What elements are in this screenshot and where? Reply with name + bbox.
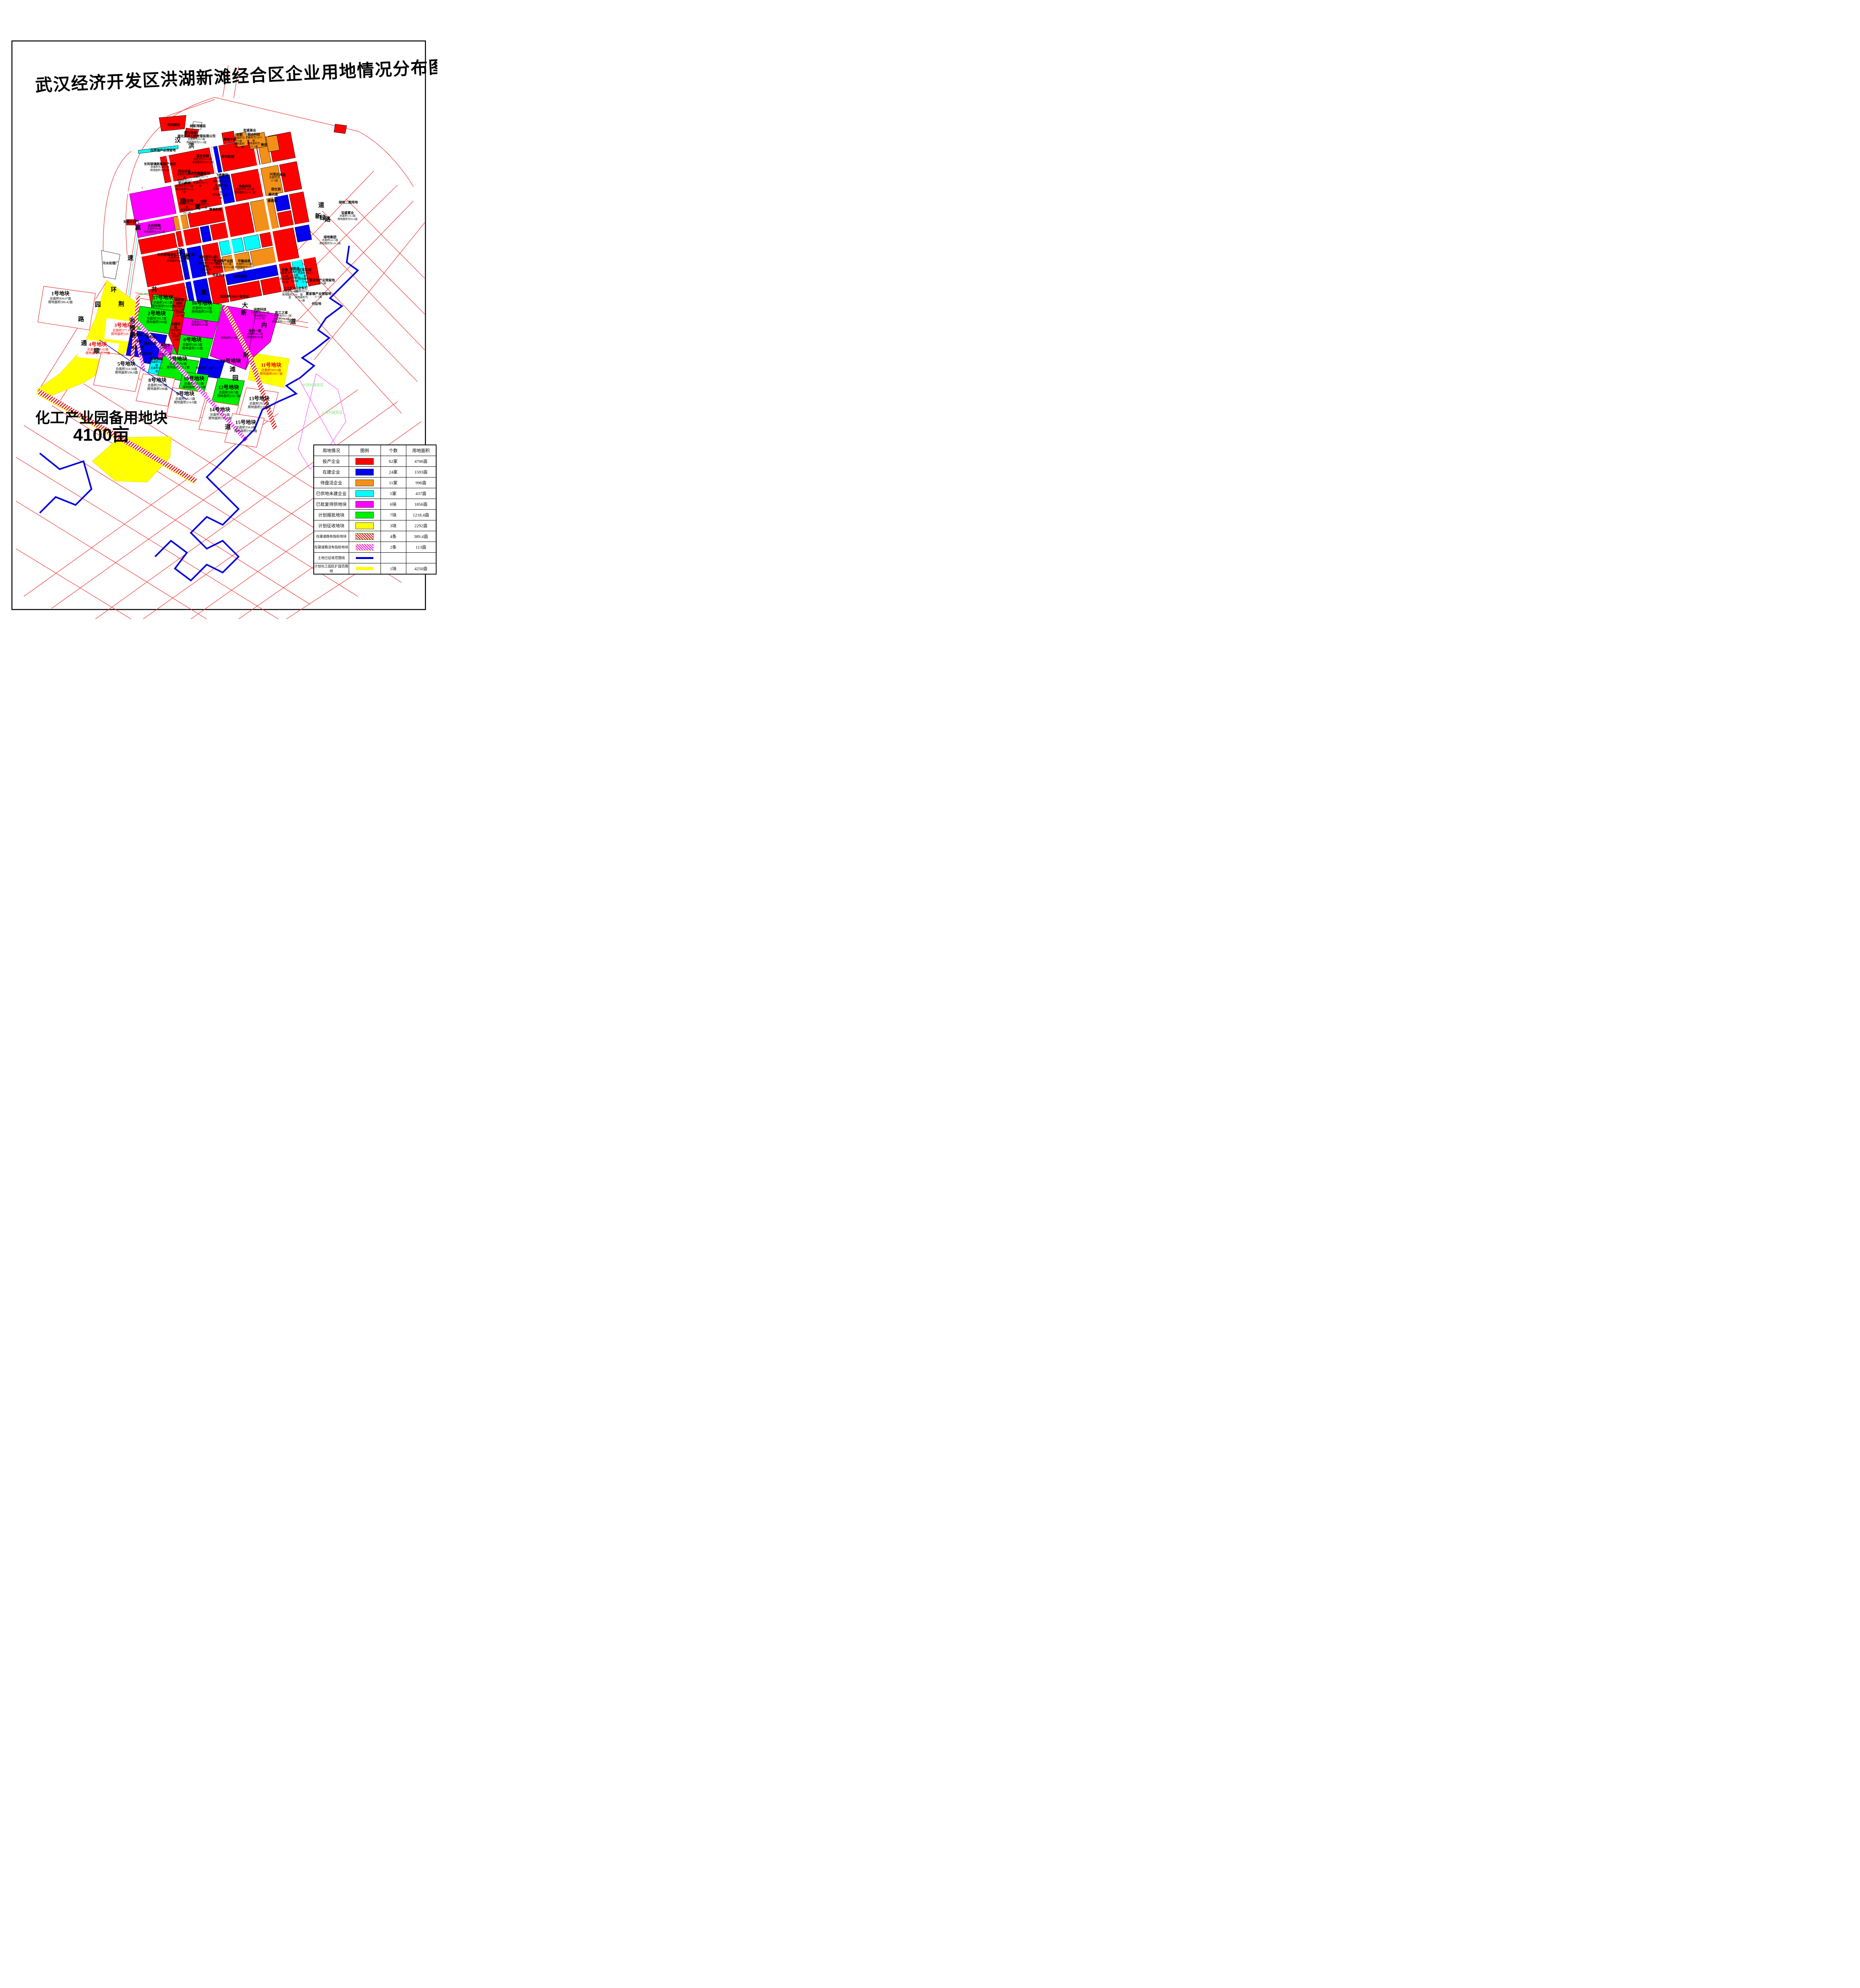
legend-area: 1593亩	[406, 467, 436, 478]
road-char-建: 建	[200, 288, 206, 297]
parcel-label-宏盛基业: 宏盛基业	[242, 128, 258, 132]
parcel-label-代征地: 代征地	[307, 302, 326, 305]
legend-label: 在建道路有指标地块	[314, 531, 349, 542]
legend-header-row: 用地情况 图例 个数 用地面积	[314, 445, 436, 456]
legend-swatch-hatch-red	[355, 533, 374, 540]
legend-count: 2条	[381, 542, 406, 553]
parcel-label-闲庭科技: 闲庭科技总面积为171.7亩用地面积为123.67亩	[250, 308, 270, 320]
legend-symbol-cell	[349, 520, 381, 531]
parcel-label-南铁涂料: 南铁涂料	[231, 274, 249, 278]
road-char-高: 高	[135, 223, 141, 232]
legend-count	[381, 553, 406, 563]
legend-row: 计划报批地块7块1218.4亩	[314, 510, 436, 520]
legend-label: 已批复待供地块	[314, 499, 349, 510]
parcel-label-盛世为敬: 盛世为敬	[143, 342, 157, 345]
parcel-label-丽泽一期: 丽泽一期	[130, 346, 145, 349]
plot-label-12号地块: 12号地块总面积298.5亩用地面积234.7亩	[217, 384, 240, 398]
parcel-label-夏家墩产业预留地: 夏家墩产业预留地67.5亩	[299, 292, 338, 299]
legend-label: 已供地未建企业	[314, 488, 349, 499]
parcel-label-鑫达盛: 鑫达盛	[266, 192, 280, 196]
legend-swatch-solid	[355, 458, 374, 465]
legend-label: 土地已征收范围线	[314, 553, 349, 563]
road-char-道: 道	[225, 423, 231, 431]
legend-row: 在建道路没有指标地块2条113亩	[314, 542, 436, 553]
reserve-area-note-line1: 化工产业园备用地块	[35, 410, 168, 426]
parcel-label-stats: 用地面积138亩	[194, 367, 214, 369]
parcel-label-华融益辰: 华融益辰总面积133.9亩用地面积为110.3亩	[235, 259, 254, 272]
parcel-label-兰盾门业: 兰盾门业总面积为115.5亩用地面积为96.6亩	[212, 184, 230, 199]
legend-symbol-cell	[349, 456, 381, 467]
parcel-label-深圳宏钢: 深圳宏钢	[220, 155, 236, 158]
parcel-label-污水处理厂: 污水处理厂	[99, 261, 122, 265]
plot-label-10号地块: 10号地块	[220, 358, 241, 364]
plot-label-8号地块: 8号地块总面积298.9亩用地面积188亩	[147, 377, 168, 391]
road-char-荆: 荆	[243, 351, 249, 359]
legend-label: 待盘活企业	[314, 478, 349, 488]
legend-header-land-use: 用地情况	[314, 445, 349, 456]
legend-swatch-line-yellow	[356, 567, 373, 570]
plot-label-1号地块: 1号地块总面积456.07亩用地面积386.42亩	[48, 291, 73, 305]
road-char-滩: 滩	[229, 365, 235, 373]
parcel-label-赛凯龙: 赛凯龙净面积56.3亩总面积69亩	[159, 344, 172, 356]
legend-area	[406, 553, 436, 563]
legend-swatch-solid	[355, 490, 374, 497]
legend-header-count: 个数	[381, 445, 406, 456]
parcel-label-张家地产业预留地: 张家地产业预留地115.6亩	[302, 279, 342, 285]
legend-header-area: 用地面积	[406, 445, 436, 456]
road-char-路: 路	[324, 215, 330, 223]
legend-swatch-hatch-magenta	[355, 544, 374, 551]
road-char-汉: 汉	[175, 136, 181, 144]
plot-label-9号地块: 9号地块总面积341.5亩用地面积214.8亩	[174, 391, 197, 405]
parcel-label-鸿冠: 鸿冠	[276, 173, 288, 177]
parcel-label-美好新材料: 美好新材料用地面积为82.5亩总面积108.2亩	[173, 298, 185, 317]
legend-count: 11家	[381, 478, 406, 488]
legend-count: 6块	[381, 499, 406, 510]
parcel-label-stats: 用地面积400亩	[217, 336, 241, 339]
road-char-速: 速	[127, 254, 133, 262]
legend-row: 已供地未建企业5家437亩	[314, 488, 436, 499]
road-char-大: 大	[242, 301, 248, 309]
road-char-内: 内	[261, 321, 267, 329]
legend-label: 投产企业	[314, 456, 349, 467]
legend-symbol-cell	[349, 467, 381, 478]
road-char-汉: 汉	[177, 247, 183, 255]
legend-row: 在建道路有指标地块4条389.4亩	[314, 531, 436, 542]
parcel-label-绿地二期用地: 绿地二期用地	[330, 200, 366, 204]
legend-row: 计划征收地块3块2292亩	[314, 520, 436, 531]
parcel-label-壹泰科技: 壹泰科技	[207, 208, 224, 211]
legend-row: 在建企业24家1593亩	[314, 467, 436, 478]
road-char-共: 共	[151, 285, 157, 293]
legend-row: 待盘活企业11家996亩	[314, 478, 436, 488]
parcel-label-回风亭110KV变电站: 回风亭110KV变电站	[217, 295, 252, 298]
parcel-label-安心地板: 安心地板总面积为78.1亩用地面积为66.8亩	[176, 181, 193, 194]
legend-label: 在建道路没有指标地块	[314, 542, 349, 553]
road-char-洪: 洪	[188, 142, 194, 150]
village-label-上湾村居民区: 上湾村居民区	[321, 410, 343, 415]
parcel-label-绿地集团: 绿地集团总面积642.5亩用地面积为520.2亩	[318, 235, 342, 245]
legend-swatch-solid	[355, 512, 374, 518]
legend-area: 996亩	[406, 478, 436, 488]
reserve-area-note: 化工产业园备用地块 4100亩	[35, 410, 168, 444]
plot-label-13号地块: 13号地块总面积292.8亩用地面积238.8亩	[248, 396, 271, 410]
legend-row: 已批复待供地块6块1856亩	[314, 499, 436, 510]
legend-area: 1856亩	[406, 499, 436, 510]
legend-area: 113亩	[406, 542, 436, 553]
legend-symbol-cell	[349, 488, 381, 499]
plot-label-14号地块: 14号地块总面积317.6亩用地面积190.5亩	[208, 407, 231, 421]
parcel-label-stats: 总面积208.7亩用地面积200亩	[188, 321, 212, 327]
legend-label: 在建企业	[314, 467, 349, 478]
road-char-夏: 夏	[194, 203, 200, 211]
parcel-label-白斧池产业预留地: 白斧池产业预留地	[143, 148, 183, 152]
village-label-中湾村居民区: 中湾村居民区	[302, 382, 324, 388]
parcel-label-长利玻璃新能源产业园: 长利玻璃新能源产业园总面积为312.7亩用地面积为282亩	[142, 162, 178, 172]
parcel-label-长利玻璃: 长利玻璃总面积806亩用地面积为736.3亩	[140, 224, 168, 233]
road-char-道: 道	[290, 317, 296, 326]
parcel-label-奥信: 奥信	[258, 143, 270, 146]
legend-symbol-cell	[349, 478, 381, 488]
plot-label-7号地块: 7号地块总面积292亩用地面积235.2亩	[167, 356, 190, 370]
parcel-label-秦峡消防: 秦峡消防净面积46.2亩总面积56.1亩	[150, 357, 163, 373]
legend-label: 计划化工园区扩园范围线	[314, 563, 349, 575]
legend-symbol-cell	[349, 542, 381, 553]
road-char-顺: 顺	[93, 347, 99, 355]
road-char-滩: 滩	[184, 253, 190, 261]
legend-count: 7块	[381, 510, 406, 520]
reserve-area-note-line2: 4100亩	[35, 426, 168, 444]
legend-table: 用地情况 图例 个数 用地面积 投产企业62家4706亩在建企业24家1593亩…	[313, 445, 437, 575]
legend-swatch-solid	[355, 480, 374, 486]
plot-label-11号地块: 11号地块总面积369.6亩用地面积309.7亩	[260, 362, 283, 376]
parcel-label-鸿众: 鸿众	[133, 339, 144, 343]
parcel-label-永鑫岩板: 永鑫岩板用地面积为80.7亩总面积100亩	[170, 322, 181, 341]
parcel-label-胡家湾陵园: 胡家湾陵园	[190, 124, 206, 128]
parcel-label-鼎兴建材: 鼎兴建材	[182, 131, 199, 134]
map-page: 武汉经济开发区洪湖新滩经合区企业用地情况分布图 化工产业园备用地块 4100亩 …	[0, 0, 437, 619]
parcel-label-恒星防水: 恒星防水	[210, 273, 227, 277]
parcel-label-洪恒商砼: 洪恒商砼	[165, 123, 183, 126]
parcel-label-嘉合铝模: 嘉合铝模总面积为312.3亩用地面积为265.6亩	[189, 154, 217, 164]
road-char-路: 路	[78, 315, 84, 323]
legend-count: 4条	[381, 531, 406, 542]
parcel-label-奥昌科技: 奥昌科技总面积为280.8亩用地面积为240.7亩	[233, 184, 257, 194]
legend-row: 投产企业62家4706亩	[314, 456, 436, 467]
legend-row: 计划化工园区扩园范围线1块4250亩	[314, 563, 436, 575]
legend-header-symbol: 图例	[349, 445, 381, 456]
road-char-园: 园	[95, 300, 101, 309]
legend-area: 389.4亩	[406, 531, 436, 542]
road-char-荆: 荆	[118, 300, 124, 308]
plot-label-16号地块: 16号地块总面积234.9亩用地面积200亩	[192, 300, 212, 314]
legend-area: 1218.4亩	[406, 510, 436, 520]
legend-label: 计划报批地块	[314, 510, 349, 520]
road-char-通: 通	[81, 339, 87, 347]
road-char-路: 路	[130, 331, 136, 339]
parcel-label-清控一期: 清控一期总面积342.1亩用地面积290亩	[245, 329, 264, 339]
legend-area: 437亩	[406, 488, 436, 499]
legend-swatch-line-blue	[356, 557, 373, 559]
parcel-label-德利思: 德利思	[145, 335, 157, 339]
road-char-园: 园	[232, 374, 238, 382]
legend-symbol-cell	[349, 563, 381, 575]
legend-area: 4250亩	[406, 563, 436, 575]
parcel-label-久胜: 久胜总面积为37.9亩净面积为35.3亩	[192, 172, 208, 187]
parcel-label-盛德利: 盛德利	[265, 199, 280, 202]
plot-label-18号地块: 18号地块总面积165.5亩用地面积124.9亩	[183, 376, 206, 390]
plot-label-5号地块: 5号地块总面积314.58亩用地面积196.8亩	[115, 361, 138, 375]
plot-label-2号地块: 2号地块总面积191.1亩用地面积168亩	[146, 311, 167, 324]
legend-area: 2292亩	[406, 520, 436, 531]
road-char-江: 江	[180, 197, 186, 205]
plot-label-15号地块: 15号地块总面积334.6亩用地面积239.8亩	[234, 419, 257, 433]
parcel-label-新北万顷: 新北万顷	[138, 352, 153, 355]
legend-count: 62家	[381, 456, 406, 467]
legend-count: 3块	[381, 520, 406, 531]
legend-count: 1块	[381, 563, 406, 575]
legend-swatch-solid	[355, 469, 374, 476]
road-char-道: 道	[318, 201, 324, 209]
plot-label-6号地块: 6号地块总面积166.5亩用地面积145亩	[182, 337, 203, 351]
legend-row: 土地已征收范围线	[314, 553, 436, 563]
legend-symbol-cell	[349, 499, 381, 510]
legend-symbol-cell	[349, 553, 381, 563]
legend-symbol-cell	[349, 510, 381, 520]
legend-label: 计划征收地块	[314, 520, 349, 531]
legend-swatch-solid	[355, 522, 374, 529]
parcel-label-宏森圆产业园: 宏森圆产业园总面积130.3亩用地面积为119.4亩	[212, 259, 235, 269]
legend-symbol-cell	[349, 531, 381, 542]
plot-label-17号地块: 17号地块总面积140.1亩用地面积110.6亩	[151, 295, 175, 309]
road-char-环: 环	[111, 285, 116, 294]
road-char-新: 新	[241, 309, 247, 317]
legend-count: 5家	[381, 488, 406, 499]
legend-area: 4706亩	[406, 456, 436, 467]
legend-swatch-solid	[355, 501, 374, 508]
parcel-label-佰仕润: 佰仕润	[269, 187, 283, 191]
legend-count: 24家	[381, 467, 406, 478]
parcel-label-宝盛置业: 宝盛置业总面积119.3亩用地面积为99.4亩	[336, 211, 359, 221]
